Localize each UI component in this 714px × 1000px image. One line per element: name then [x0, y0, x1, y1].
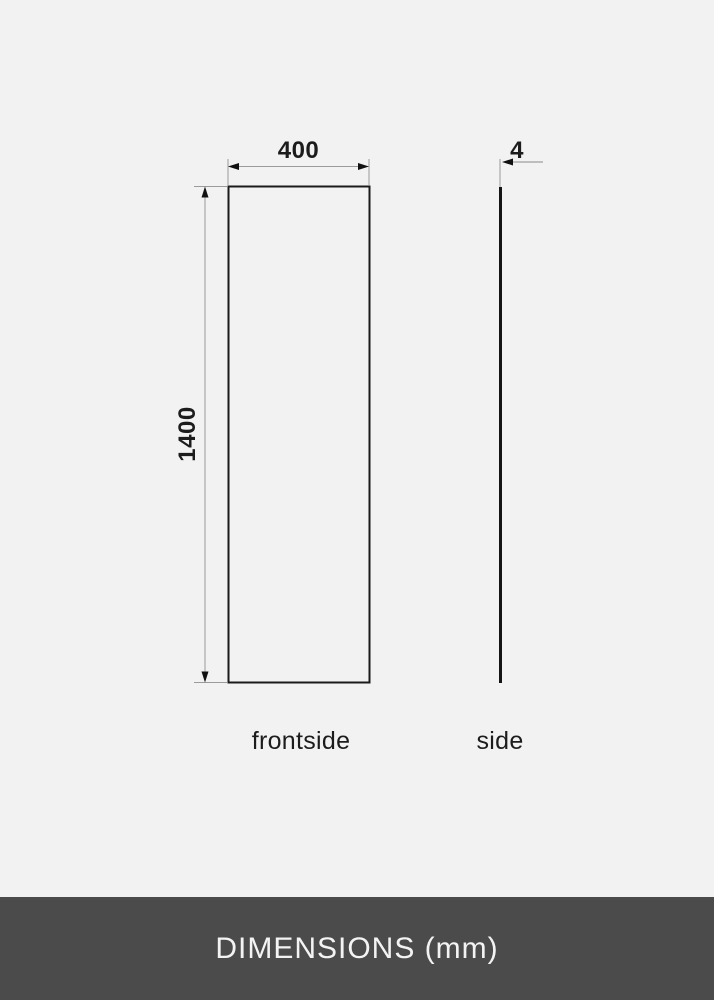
front-view-caption: frontside [227, 729, 375, 754]
thickness-dimension-label: 4 [487, 139, 547, 163]
front-panel-outline [229, 187, 370, 683]
footer-bar: DIMENSIONS (mm) [0, 897, 714, 1000]
width-dimension-label: 400 [227, 139, 370, 163]
height-arrow-bottom-icon [202, 672, 209, 683]
side-view-caption: side [450, 729, 550, 754]
footer-title: DIMENSIONS (mm) [215, 932, 498, 966]
dimensions-page: 400 1400 4 frontside side DIMENSIONS (mm… [0, 0, 714, 1000]
width-arrow-left-icon [228, 163, 239, 170]
width-arrow-right-icon [358, 163, 369, 170]
height-dimension-label: 1400 [176, 374, 200, 494]
height-arrow-top-icon [202, 187, 209, 198]
